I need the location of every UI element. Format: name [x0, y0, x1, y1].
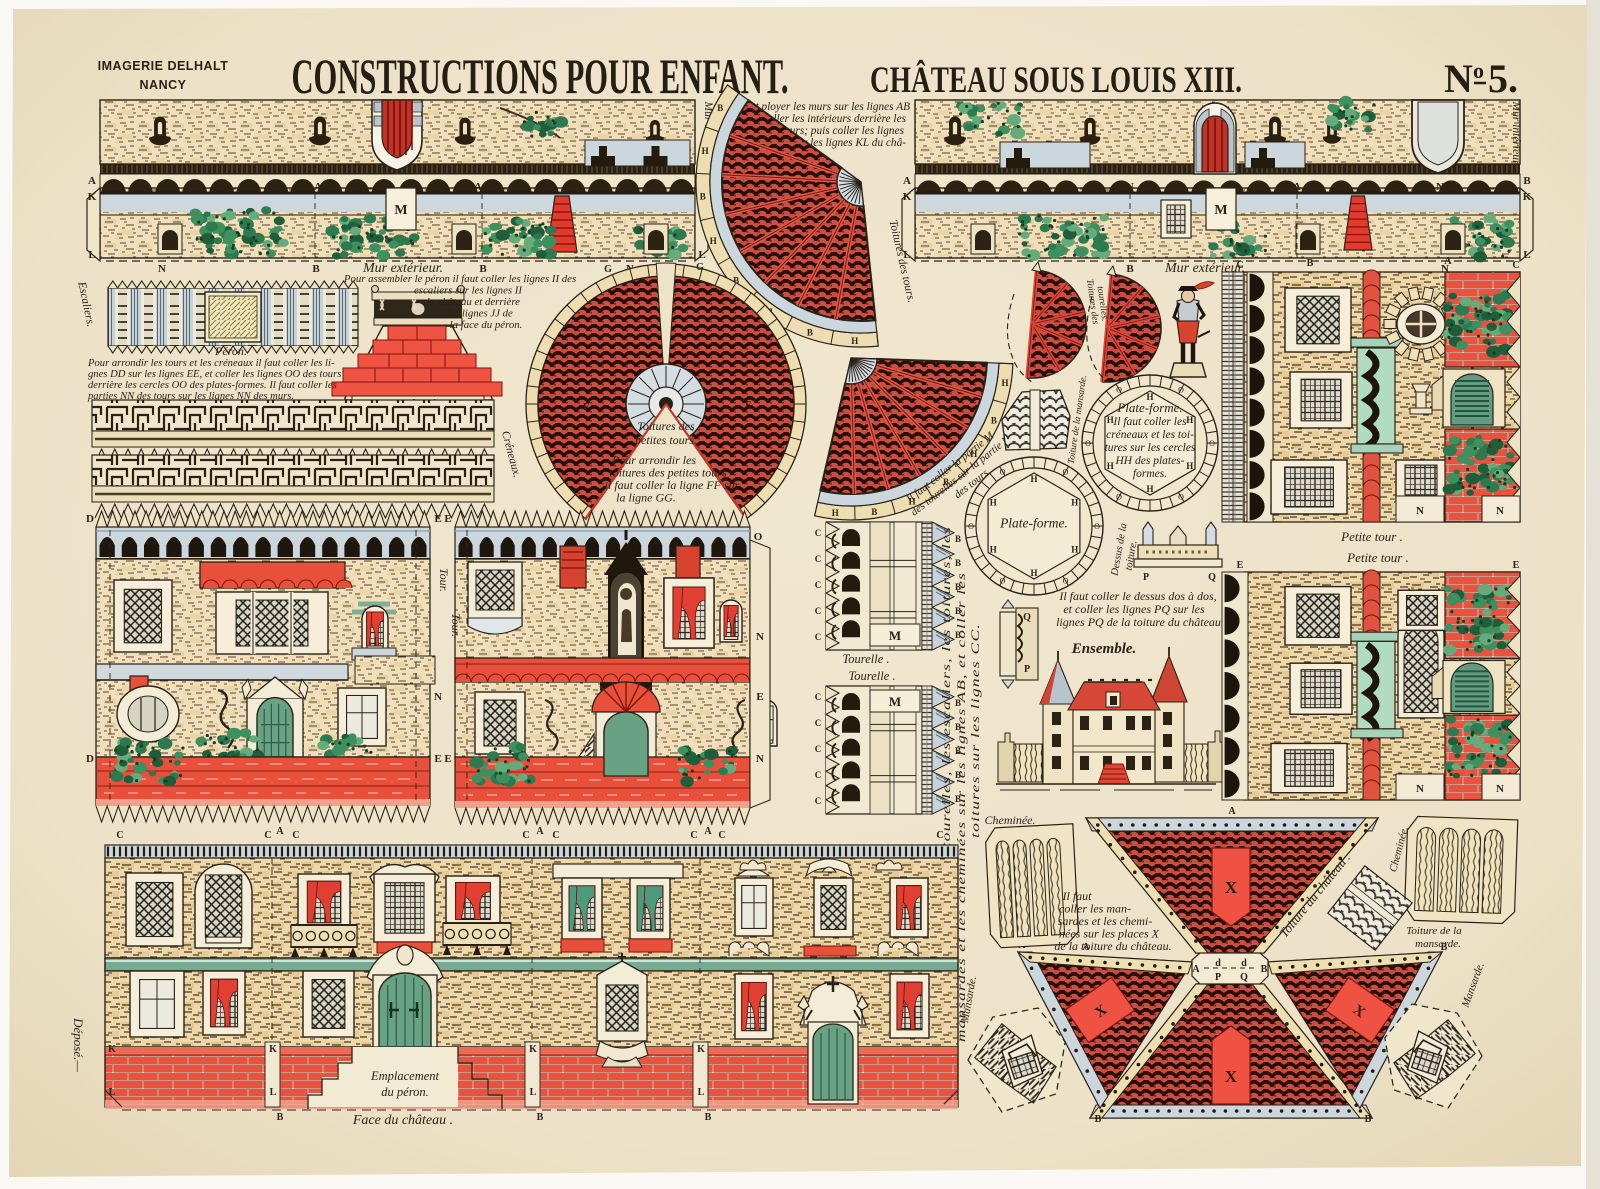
svg-text:H: H [1107, 461, 1114, 471]
svg-text:B: B [277, 1112, 284, 1123]
svg-text:d: d [1215, 958, 1221, 969]
svg-text:G: G [604, 264, 612, 275]
svg-text:K: K [529, 1044, 537, 1055]
svg-text:A: A [1293, 181, 1301, 193]
svg-text:N: N [1496, 505, 1504, 517]
svg-text:du château et derrière: du château et derrière [424, 296, 520, 308]
svg-text:M: M [394, 203, 407, 218]
svg-text:N: N [1444, 56, 1473, 101]
svg-text:L: L [698, 249, 705, 261]
svg-text:P: P [1143, 572, 1149, 583]
svg-text:H: H [1107, 415, 1114, 425]
svg-text:C: C [815, 692, 822, 702]
svg-text:O: O [754, 531, 763, 543]
svg-text:M: M [889, 628, 901, 643]
svg-text:B: B [312, 263, 320, 275]
svg-text:L: L [698, 1087, 705, 1098]
svg-text:K: K [697, 1044, 705, 1055]
svg-text:A: A [704, 826, 712, 837]
svg-text:Plate-forme.: Plate-forme. [1116, 400, 1182, 415]
svg-text:B: B [1523, 175, 1531, 187]
svg-text:A: A [276, 826, 284, 837]
svg-text:CHÂTEAU SOUS LOUIS XIII.: CHÂTEAU SOUS LOUIS XIII. [870, 59, 1242, 101]
svg-text:E: E [444, 753, 451, 765]
svg-text:O: O [1178, 385, 1184, 394]
svg-text:H: H [1001, 378, 1008, 388]
svg-text:O: O [1063, 577, 1069, 586]
svg-text:A: A [474, 181, 482, 193]
svg-text:créneaux et les toi-: créneaux et les toi- [1106, 429, 1194, 441]
svg-text:N: N [756, 631, 764, 643]
svg-text:O: O [1178, 493, 1184, 502]
svg-text:B: B [807, 328, 813, 338]
svg-text:les lignes JJ de: les lignes JJ de [447, 308, 513, 320]
svg-text:E: E [434, 513, 441, 525]
svg-text:Tourelle .: Tourelle . [843, 652, 890, 666]
svg-text:H: H [1030, 474, 1037, 484]
svg-text:N: N [158, 181, 166, 193]
svg-text:F: F [745, 400, 751, 411]
svg-text:O: O [1000, 577, 1006, 586]
svg-text:O: O [1063, 467, 1069, 476]
svg-text:C: C [718, 830, 725, 841]
svg-text:Péron.: Péron. [214, 344, 247, 358]
svg-text:K: K [1523, 191, 1532, 203]
svg-text:C: C [690, 830, 697, 841]
svg-text:H: H [1071, 545, 1078, 555]
svg-text:H: H [1186, 461, 1193, 471]
svg-text:Ensemble.: Ensemble. [1071, 641, 1137, 657]
svg-text:X: X [1225, 878, 1238, 897]
svg-text:N: N [434, 691, 442, 703]
svg-text:N: N [624, 181, 632, 193]
svg-text:Petite tour .: Petite tour . [1346, 550, 1409, 565]
svg-text:O: O [968, 522, 974, 531]
svg-text:C: C [116, 830, 123, 841]
svg-text:E: E [1513, 560, 1520, 571]
svg-text:H: H [702, 146, 709, 156]
svg-text:Déposé.—: Déposé.— [71, 1017, 86, 1072]
svg-text:petites tours.: petites tours. [634, 433, 697, 447]
svg-text:A: A [903, 175, 911, 187]
svg-text:Toiture de la: Toiture de la [1406, 925, 1462, 937]
svg-text:N: N [1416, 783, 1424, 795]
svg-text:d: d [1241, 958, 1247, 969]
svg-text:A: A [1228, 806, 1236, 817]
svg-text:L: L [530, 1087, 537, 1098]
svg-text:O: O [1116, 385, 1122, 394]
svg-text:mansarde.: mansarde. [1415, 938, 1461, 950]
svg-text:C: C [522, 830, 529, 841]
svg-text:L: L [1523, 249, 1530, 261]
svg-text:C: C [815, 744, 822, 754]
svg-text:Pour assembler le péron il fau: Pour assembler le péron il faut coller l… [343, 273, 576, 285]
svg-text:M: M [1214, 203, 1227, 218]
svg-text:A: A [1192, 964, 1200, 975]
svg-text:C: C [264, 830, 271, 841]
svg-text:Q: Q [1023, 612, 1031, 623]
svg-text:A: A [1444, 256, 1452, 267]
svg-text:B: B [1126, 263, 1134, 275]
svg-text:Tourelle .: Tourelle . [849, 669, 896, 683]
svg-text:X: X [1225, 1067, 1238, 1086]
svg-text:D: D [86, 753, 94, 765]
svg-text:Pour arrondir les tours et les: Pour arrondir les tours et les créneaux … [87, 358, 335, 369]
svg-text:B: B [1095, 1114, 1102, 1125]
svg-text:N: N [1436, 181, 1444, 193]
svg-text:K: K [269, 1044, 277, 1055]
svg-text:H: H [1146, 392, 1153, 402]
svg-text:E: E [444, 513, 451, 525]
svg-text:K: K [88, 191, 97, 203]
svg-text:Plate-forme.: Plate-forme. [999, 516, 1068, 531]
svg-text:C: C [1236, 260, 1243, 271]
svg-text:Tour.: Tour. [437, 568, 451, 592]
svg-text:B: B [1307, 258, 1314, 269]
svg-text:Q: Q [1208, 572, 1216, 583]
svg-text:C: C [815, 554, 822, 564]
svg-text:B: B [700, 192, 706, 202]
svg-text:NANCY: NANCY [140, 78, 187, 92]
svg-text:H: H [1146, 484, 1153, 494]
svg-text:C: C [815, 606, 822, 616]
svg-text:tures sur les cercles: tures sur les cercles [1105, 442, 1196, 454]
svg-text:Petite tour .: Petite tour . [1340, 529, 1403, 544]
svg-text:H: H [1186, 415, 1193, 425]
svg-text:du péron.: du péron. [381, 1085, 428, 1099]
svg-text:lignes PQ de la toiture du châ: lignes PQ de la toiture du château. [1056, 615, 1224, 629]
svg-text:O: O [1094, 522, 1100, 531]
svg-text:C: C [1512, 260, 1519, 271]
svg-text:H: H [1071, 498, 1078, 508]
svg-text:B: B [991, 416, 997, 426]
svg-text:H: H [1030, 568, 1037, 578]
svg-text:Il faut coller les: Il faut coller les [1112, 416, 1187, 428]
svg-text:N: N [1416, 505, 1424, 517]
svg-text:Toitures des: Toitures des [637, 419, 695, 433]
svg-text:Face du château .: Face du château . [352, 1113, 453, 1128]
svg-text:C: C [815, 796, 822, 806]
svg-text:F: F [583, 402, 589, 413]
svg-text:B: B [537, 1112, 544, 1123]
svg-text:C: C [815, 718, 822, 728]
svg-text:E: E [756, 691, 763, 703]
svg-text:D: D [86, 513, 94, 525]
svg-text:Il faut coller le dessus dos à: Il faut coller le dessus dos à dos, [1058, 589, 1216, 603]
svg-text:IMAGERIE DELHALT: IMAGERIE DELHALT [98, 59, 229, 73]
svg-text:K: K [108, 1044, 116, 1055]
svg-text:L: L [270, 1087, 277, 1098]
svg-text:C: C [292, 830, 299, 841]
svg-text:C: C [815, 580, 822, 590]
svg-text:N: N [1496, 783, 1504, 795]
svg-text:E: E [434, 753, 441, 765]
svg-text:formes.: formes. [1133, 468, 1167, 480]
svg-text:N: N [756, 753, 764, 765]
svg-text:HH des plates-: HH des plates- [1115, 455, 1185, 467]
svg-text:Q: Q [1240, 972, 1248, 983]
svg-text:C: C [815, 528, 822, 538]
svg-text:O: O [1209, 439, 1215, 448]
svg-text:A: A [88, 175, 96, 187]
svg-text:B: B [955, 534, 961, 544]
svg-text:derrière les cercles OO des pl: derrière les cercles OO des plates-forme… [88, 380, 337, 391]
svg-text:gnes DD sur les lignes EE, et: gnes DD sur les lignes EE, et coller les… [88, 369, 341, 380]
svg-text:B: B [1261, 964, 1268, 975]
svg-text:H: H [990, 498, 997, 508]
svg-text:B: B [705, 1112, 712, 1123]
svg-text:B: B [717, 103, 723, 113]
svg-text:o: o [1473, 58, 1484, 83]
svg-text:N: N [1126, 181, 1134, 193]
svg-text:N: N [158, 263, 166, 275]
svg-text:5.: 5. [1488, 56, 1518, 101]
svg-text:A: A [536, 826, 544, 837]
svg-text:B: B [1365, 1114, 1372, 1125]
svg-text:O: O [1116, 493, 1122, 502]
svg-text:B: B [955, 558, 961, 568]
svg-text:K: K [903, 191, 912, 203]
svg-text:O: O [1085, 439, 1091, 448]
svg-text:Cheminée.: Cheminée. [985, 813, 1036, 827]
svg-text:Emplacement: Emplacement [370, 1069, 440, 1083]
svg-text:L: L [88, 249, 95, 261]
svg-text:C: C [552, 830, 559, 841]
svg-text:la ligne GG.: la ligne GG. [616, 491, 676, 505]
svg-text:M: M [889, 694, 901, 709]
svg-text:C: C [815, 770, 822, 780]
svg-text:CONSTRUCTIONS POUR ENFANT.: CONSTRUCTIONS POUR ENFANT. [292, 48, 789, 104]
svg-text:H: H [851, 336, 858, 346]
svg-text:H: H [990, 545, 997, 555]
svg-text:P: P [1215, 972, 1221, 983]
svg-text:Tour.: Tour. [449, 613, 463, 637]
svg-text:la face du péron.: la face du péron. [450, 319, 523, 331]
svg-text:B: B [871, 507, 877, 517]
svg-text:toitures sur les lignes CC.: toitures sur les lignes CC. [970, 623, 982, 838]
svg-text:A: A [314, 181, 322, 193]
svg-text:et coller les lignes PQ sur le: et coller les lignes PQ sur les [1063, 602, 1205, 616]
svg-text:H: H [832, 508, 839, 518]
svg-text:C: C [815, 632, 822, 642]
svg-text:L: L [109, 1087, 116, 1098]
svg-text:G: G [696, 262, 704, 273]
svg-text:escaliers sur les lignes II: escaliers sur les lignes II [414, 285, 523, 297]
svg-text:E: E [1237, 560, 1244, 571]
svg-text:C: C [936, 830, 943, 841]
svg-text:Mur intérieur: Mur intérieur [1510, 101, 1522, 165]
svg-text:O: O [1000, 467, 1006, 476]
svg-text:H: H [710, 236, 717, 246]
svg-text:P: P [1024, 664, 1030, 675]
svg-text:de la toiture du château.: de la toiture du château. [1054, 939, 1171, 953]
